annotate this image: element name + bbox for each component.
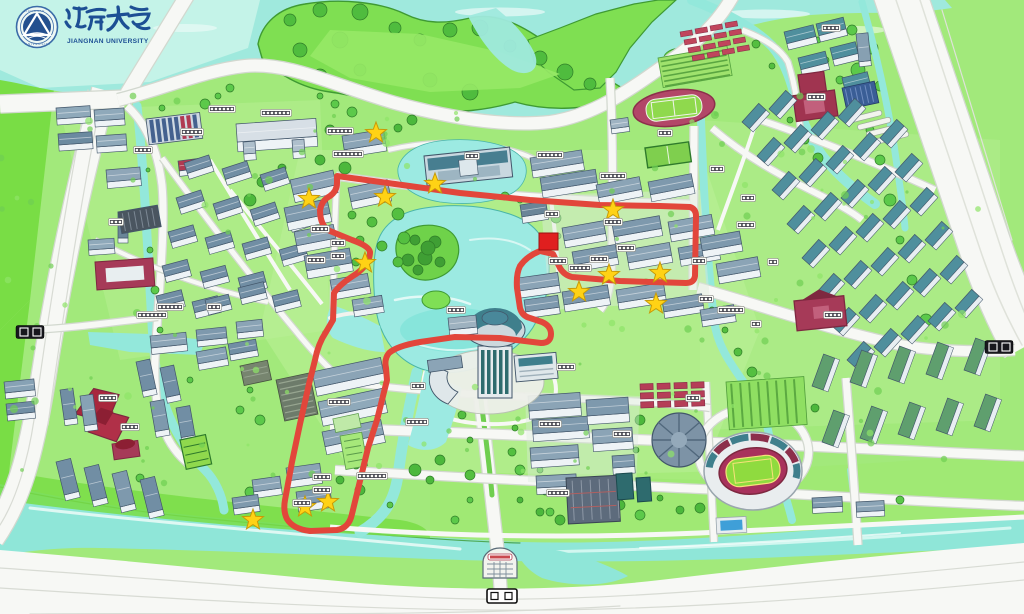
svg-text:JIANGNAN UNIVERSITY: JIANGNAN UNIVERSITY xyxy=(67,38,149,45)
svg-text:J I A N G N A N: J I A N G N A N xyxy=(24,9,44,13)
svg-text:U N I V E R S I T Y: U N I V E R S I T Y xyxy=(25,42,50,46)
